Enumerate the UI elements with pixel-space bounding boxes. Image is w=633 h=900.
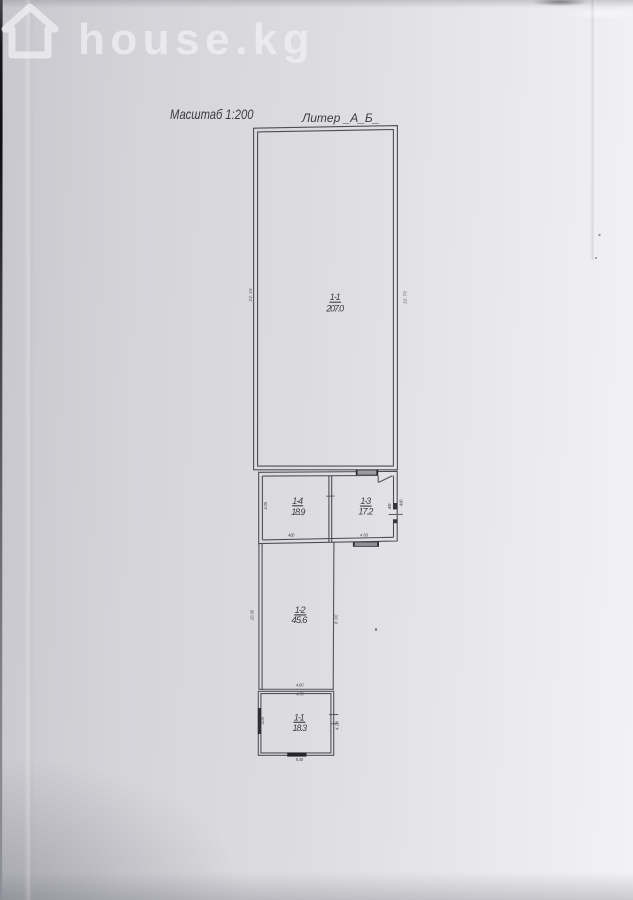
svg-text:4 60: 4 60 <box>360 532 369 537</box>
svg-text:4.60: 4.60 <box>296 683 304 688</box>
svg-text:5.40: 5.40 <box>296 757 304 762</box>
svg-text:17.2: 17.2 <box>358 506 373 516</box>
svg-text:4.28: 4.28 <box>334 720 339 730</box>
svg-text:18.9: 18.9 <box>291 507 305 517</box>
svg-text:4.60: 4.60 <box>399 499 404 507</box>
svg-text:1-2: 1-2 <box>295 605 306 615</box>
svg-text:22.35: 22.35 <box>248 288 253 303</box>
svg-text:18.3: 18.3 <box>293 723 308 733</box>
svg-text:1-1: 1-1 <box>294 712 305 722</box>
svg-text:8.90: 8.90 <box>334 614 339 624</box>
svg-text:22.70: 22.70 <box>403 291 408 305</box>
svg-text:207.0: 207.0 <box>325 303 344 313</box>
svg-text:10.30: 10.30 <box>250 609 255 620</box>
svg-text:1-4: 1-4 <box>292 496 303 506</box>
svg-text:4.05: 4.05 <box>387 503 392 510</box>
svg-text:3.05: 3.05 <box>260 717 265 725</box>
svg-text:45.6: 45.6 <box>291 615 308 626</box>
svg-text:4.70: 4.70 <box>296 691 304 696</box>
svg-text:1-1: 1-1 <box>330 292 341 302</box>
svg-text:4.35: 4.35 <box>263 501 268 509</box>
svg-text:4.60: 4.60 <box>288 533 295 538</box>
svg-text:1-3: 1-3 <box>360 496 371 506</box>
